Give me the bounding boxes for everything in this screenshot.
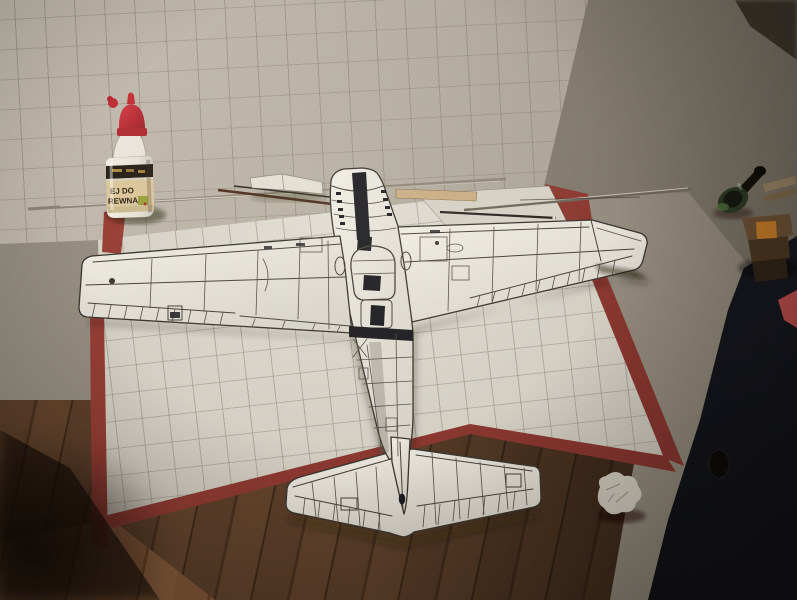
bottle-cap (107, 93, 147, 137)
wood-glue-bottle: EJ DO REWNA (106, 93, 166, 225)
floor-hole (709, 450, 729, 478)
orange-scrap (756, 221, 777, 239)
photo-illustration-layer: EJ DO REWNA (0, 0, 797, 600)
left-wing (79, 236, 352, 333)
tailwheel-mark (399, 494, 405, 505)
paintbrush-handle (250, 174, 326, 202)
crumpled-tissue (598, 472, 646, 523)
label-badge (138, 196, 148, 205)
green-bottle (713, 166, 766, 219)
workbench-photo-scene: EJ DO REWNA (0, 0, 797, 600)
wood-scraps (738, 214, 797, 282)
airplane-paper-plan (79, 168, 650, 548)
glue-label-line1: EJ DO (110, 186, 134, 196)
shelf-slats (763, 176, 797, 202)
